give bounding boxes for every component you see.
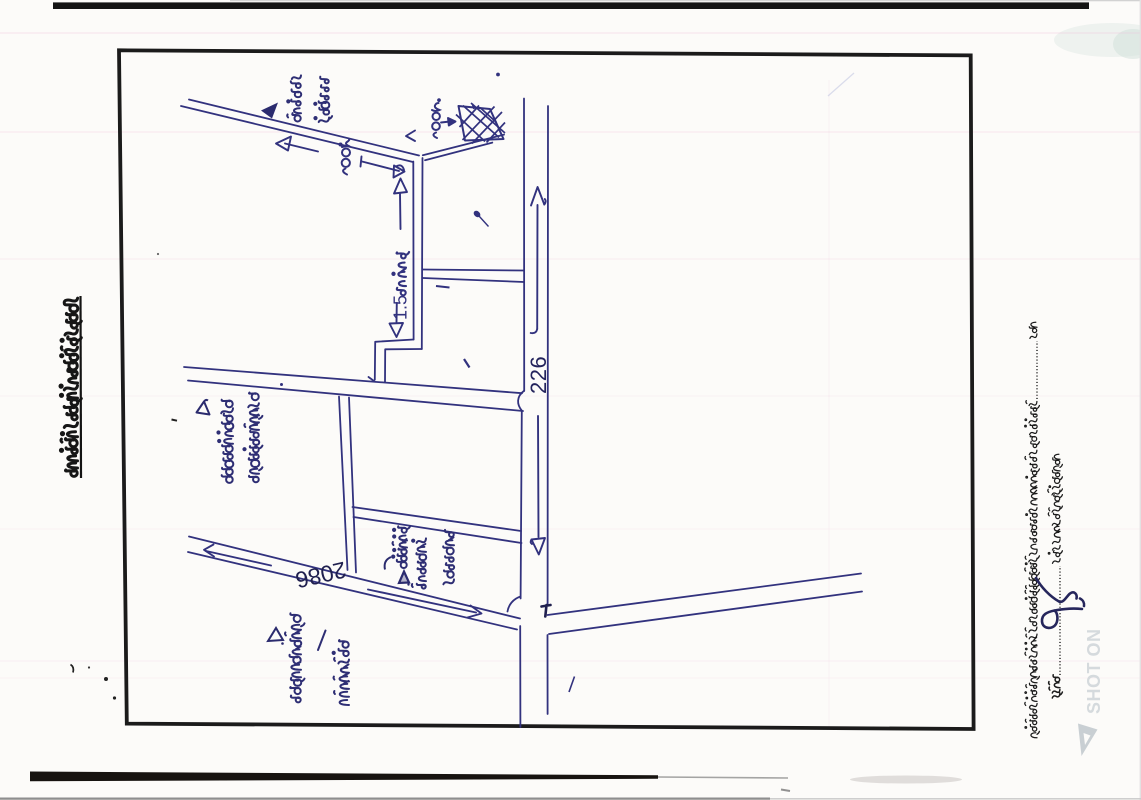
svg-text:226: 226 [526, 356, 551, 394]
svg-text:1.5: 1.5 [391, 295, 411, 320]
svg-text:SHOT ON: SHOT ON [1084, 628, 1104, 714]
